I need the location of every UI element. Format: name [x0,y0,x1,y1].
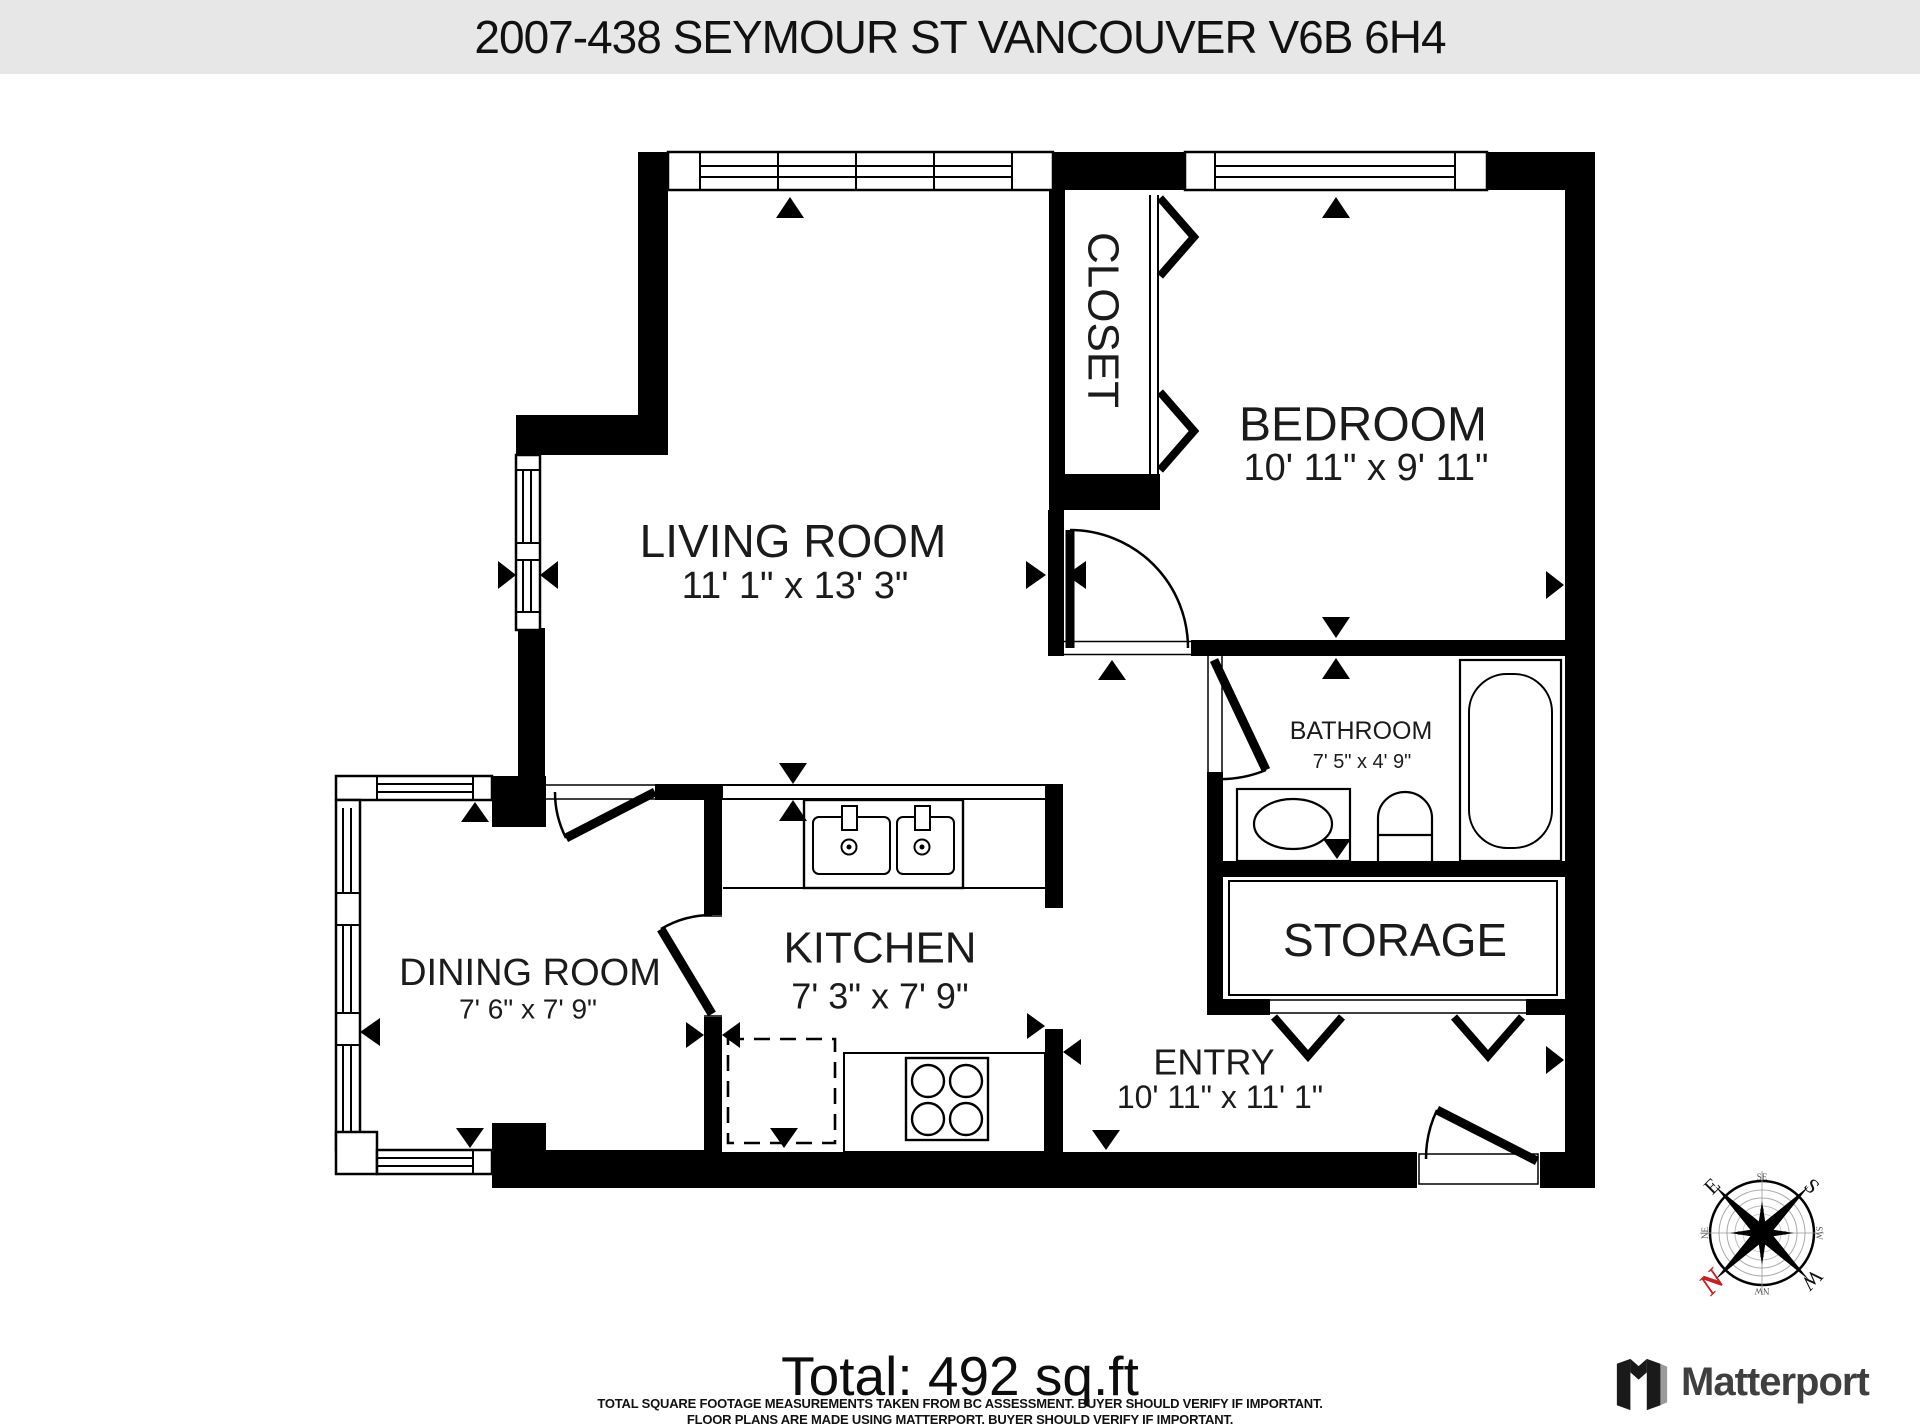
measure-arrow [1063,1039,1081,1065]
measure-arrow [1546,571,1564,599]
measure-arrow [456,1128,484,1148]
measure-arrow [770,1128,798,1148]
room-dims-bedroom: 10' 11" x 9' 11" [1243,447,1488,489]
room-label-dining: DINING ROOM [399,952,661,994]
measure-arrow [360,1018,380,1046]
window-dining-left [336,800,377,1174]
measure-arrow [1322,658,1350,679]
compass-intercardinal-ne: NE [1700,1227,1710,1239]
measure-arrow [1322,617,1350,638]
floorplan-drawing: LIVING ROOM 11' 1" x 13' 3" BEDROOM 10' … [0,0,1920,1427]
closet-bifold-doors [1150,195,1194,474]
window-living-top [668,152,1053,190]
measure-arrow [461,802,489,822]
bathroom-door [1207,656,1266,779]
storage-bifold-chevron [1274,1017,1342,1056]
toilet [1378,792,1432,861]
room-label-entry: ENTRY [1153,1042,1274,1083]
appliance-dashed-box [728,1039,835,1143]
measure-arrow [722,1022,740,1048]
storage-bifold-chevron [1454,1017,1522,1056]
measure-arrow [776,197,804,218]
storage-bifold-doors [1270,999,1526,1056]
front-door [1417,1110,1540,1188]
faucet-icon [915,806,930,830]
closet-bifold-chevron [1160,198,1194,276]
measure-arrow [1026,561,1046,589]
stove [906,1058,988,1140]
matterport-logo-text: Matterport [1681,1360,1869,1405]
matterport-icon [1613,1356,1671,1414]
double-sink [804,800,963,888]
closet-bifold-chevron [1160,392,1194,470]
measure-arrow [686,1022,704,1048]
room-label-storage: STORAGE [1283,914,1507,966]
walls [492,152,1595,1188]
room-dims-bathroom: 7' 5" x 4' 9" [1313,751,1412,773]
kitchen-door [661,915,722,1017]
dining-door [546,784,655,838]
window-living-left [516,455,540,630]
measure-arrow [1027,1013,1045,1039]
room-label-kitchen: KITCHEN [783,924,976,973]
compass-cardinal-s: S [1799,1173,1824,1198]
faucet-icon [842,806,857,830]
room-label-bathroom: BATHROOM [1290,717,1433,745]
room-dims-kitchen: 7' 3" x 7' 9" [791,976,968,1017]
measure-arrow [1322,197,1350,218]
measure-arrow [779,763,807,784]
floorplan-page: 2007-438 SEYMOUR ST VANCOUVER V6B 6H4 [0,0,1920,1427]
window-bedroom-top [1185,152,1487,190]
compass-intercardinal-nw: NW [1754,1286,1769,1296]
bedroom-door [1064,530,1191,656]
room-label-closet: CLOSET [1079,232,1128,408]
measure-arrow [779,800,807,821]
compass-rose-icon: E S W N SE NE SW NW [1692,1171,1828,1302]
bedroom-door-arc [1070,530,1188,648]
room-dims-living: 11' 1" x 13' 3" [682,565,909,607]
measure-arrow [1098,660,1126,680]
matterport-logo: Matterport [1613,1356,1913,1416]
measure-arrow [1546,1046,1564,1074]
window-dining-top [336,776,492,800]
measure-arrow [540,561,558,589]
room-dims-entry: 10' 11" x 11' 1" [1117,1079,1323,1115]
room-label-living: LIVING ROOM [640,515,947,567]
measure-arrow [498,561,516,589]
room-dims-dining: 7' 6" x 7' 9" [459,994,597,1025]
compass-intercardinal-se: SE [1757,1172,1768,1182]
window-dining-bottom [377,1150,492,1174]
compass-intercardinal-sw: SW [1814,1226,1824,1240]
bathtub [1460,660,1561,861]
measure-arrow [1092,1130,1120,1150]
compass-cardinal-e: E [1699,1173,1725,1199]
room-label-bedroom: BEDROOM [1239,399,1487,452]
